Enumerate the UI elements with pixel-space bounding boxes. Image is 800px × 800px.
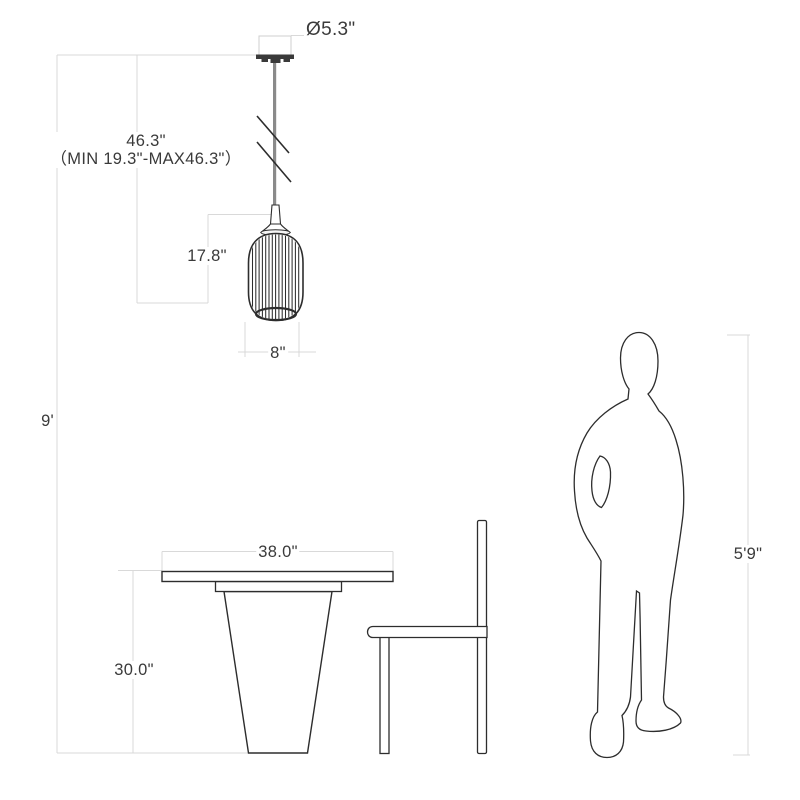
cord-length-range: （MIN 19.3"-MAX46.3"）: [50, 150, 241, 168]
canopy-cord-grip: [271, 59, 281, 63]
socket-stem: [271, 205, 281, 224]
table-pedestal: [224, 592, 332, 754]
table-height-label: 30.0": [112, 661, 155, 679]
diagram-linework: [0, 0, 800, 800]
canopy-screw-left: [262, 59, 269, 62]
dimension-diagram: Ø5.3" 46.3" （MIN 19.3"-MAX46.3"） 17.8" 8…: [0, 0, 800, 800]
cord-length-label: 46.3" （MIN 19.3"-MAX46.3"）: [48, 132, 243, 168]
canopy-body: [259, 36, 291, 55]
cord-length-value: 46.3": [50, 132, 241, 150]
canopy-screw-right: [284, 59, 291, 62]
canopy-plate: [256, 55, 294, 60]
table-top: [162, 572, 393, 582]
shade-height-label: 17.8": [185, 247, 228, 265]
chair-seat: [368, 627, 488, 638]
table-support: [216, 582, 342, 592]
pendant-light: [249, 36, 304, 324]
table-width-label: 38.0": [256, 543, 299, 561]
canopy-diameter-label: Ø5.3": [304, 20, 357, 41]
person-outline: [574, 333, 684, 758]
ceiling-height-label: 9': [39, 412, 56, 430]
dining-table: [162, 572, 393, 754]
person-height-label: 5'9": [732, 545, 765, 563]
person-figure: [574, 333, 684, 758]
shade-width-label: 8": [268, 344, 288, 362]
chair-front-leg: [380, 637, 389, 754]
chair: [368, 521, 488, 754]
